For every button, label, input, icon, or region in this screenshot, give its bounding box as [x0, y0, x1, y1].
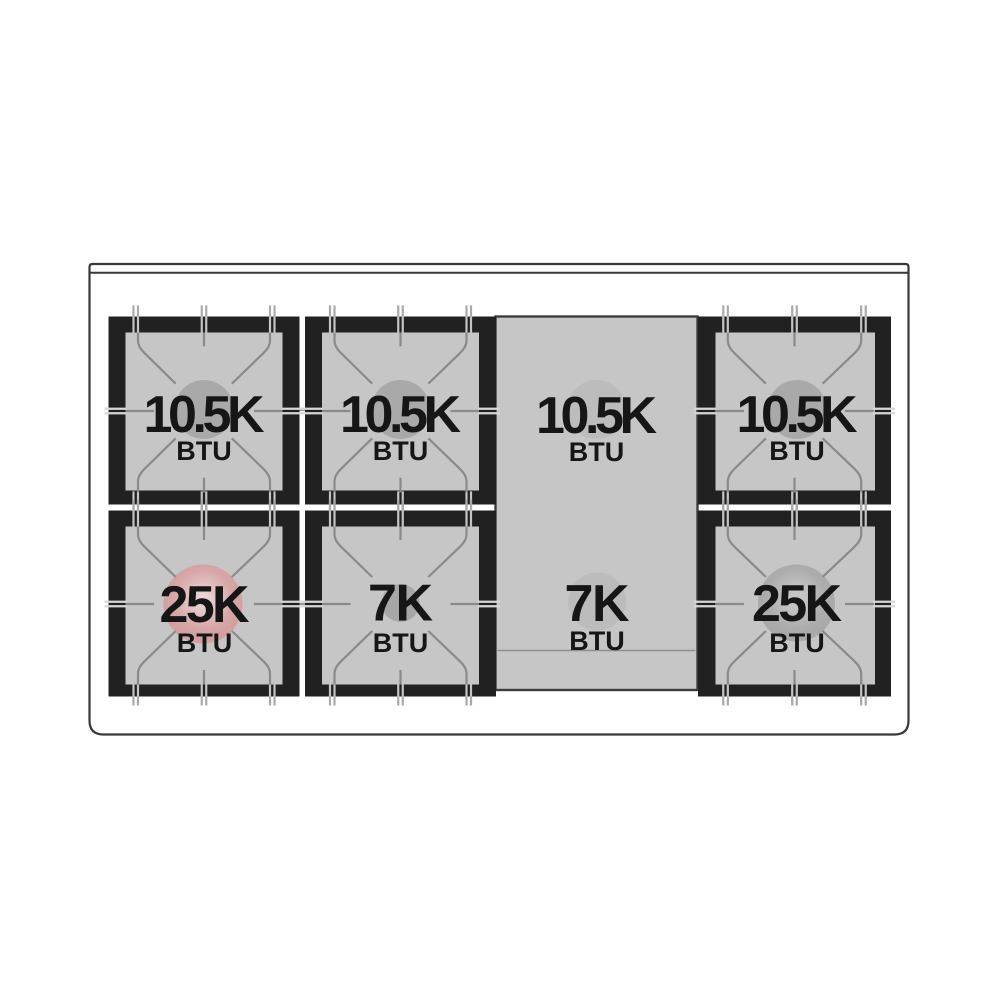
- svg-text:25K: 25K: [160, 576, 250, 634]
- svg-text:BTU: BTU: [769, 436, 825, 466]
- svg-text:BTU: BTU: [769, 628, 825, 658]
- svg-text:BTU: BTU: [569, 437, 625, 467]
- svg-text:7K: 7K: [565, 575, 630, 633]
- svg-text:25K: 25K: [752, 575, 842, 633]
- svg-text:BTU: BTU: [177, 628, 233, 658]
- svg-text:BTU: BTU: [373, 628, 429, 658]
- svg-text:7K: 7K: [368, 575, 433, 633]
- svg-text:BTU: BTU: [569, 626, 625, 656]
- svg-text:BTU: BTU: [176, 436, 232, 466]
- svg-text:BTU: BTU: [373, 436, 429, 466]
